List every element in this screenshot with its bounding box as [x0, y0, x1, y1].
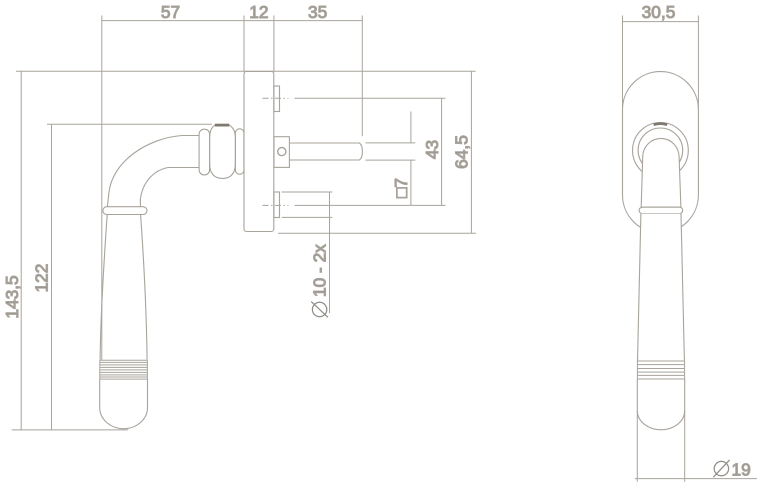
svg-text:122: 122: [31, 264, 51, 293]
svg-text:10 - 2x: 10 - 2x: [310, 244, 330, 297]
svg-text:143,5: 143,5: [2, 275, 22, 318]
svg-text:12: 12: [249, 2, 268, 22]
svg-text:19: 19: [732, 459, 751, 479]
svg-text:30,5: 30,5: [642, 2, 676, 22]
svg-text:35: 35: [308, 2, 327, 22]
svg-text:□7: □7: [391, 178, 411, 198]
svg-text:43: 43: [422, 140, 442, 159]
svg-text:57: 57: [161, 2, 180, 22]
svg-text:64,5: 64,5: [452, 135, 472, 169]
